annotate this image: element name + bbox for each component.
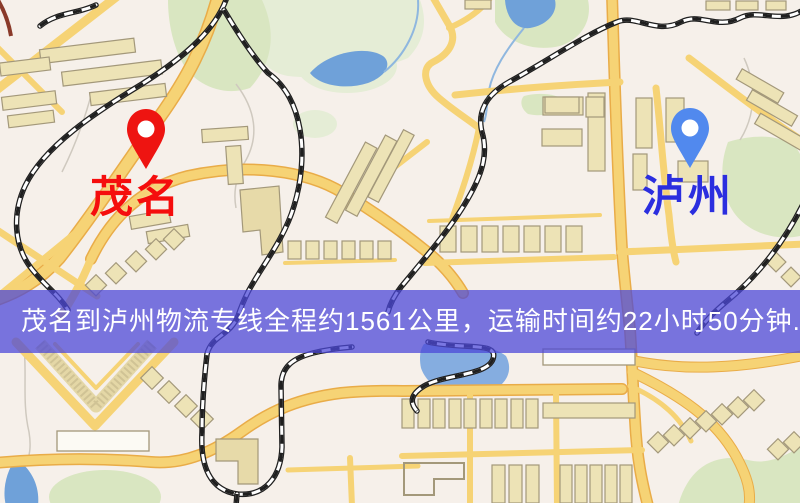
origin-pin-icon xyxy=(124,106,168,172)
map-canvas xyxy=(0,0,800,503)
map-container: 茂名 泸州 茂名到泸州物流专线全程约1561公里，运输时间约22小时50分钟. xyxy=(0,0,800,503)
route-info-banner: 茂名到泸州物流专线全程约1561公里，运输时间约22小时50分钟. xyxy=(0,290,800,353)
destination-pin-icon xyxy=(668,105,712,171)
origin-label: 茂名 xyxy=(90,177,182,220)
destination-label: 泸州 xyxy=(642,176,734,219)
route-info-text: 茂名到泸州物流专线全程约1561公里，运输时间约22小时50分钟. xyxy=(0,290,800,353)
